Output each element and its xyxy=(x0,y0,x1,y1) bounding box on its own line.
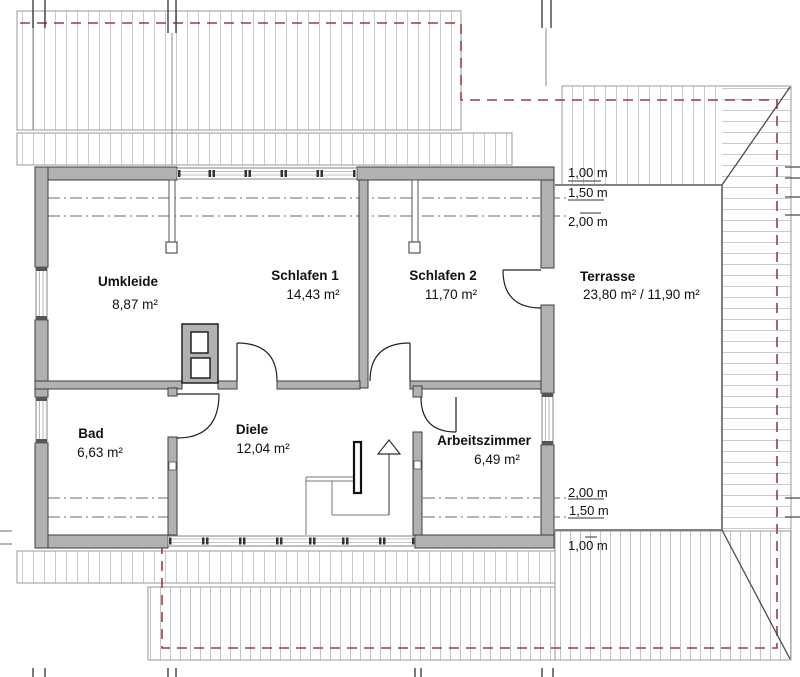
room-name: Bad xyxy=(78,426,104,441)
wall-top-right xyxy=(357,167,554,180)
room-name: Diele xyxy=(236,422,268,437)
room-label-bad: Bad xyxy=(78,426,104,441)
room-label-schlafen2: Schlafen 2 xyxy=(409,268,477,283)
wall-bottom-left xyxy=(35,535,168,548)
chimney xyxy=(182,324,218,383)
room-label-terrasse: Terrasse 23,80 m² / 11,90 m² xyxy=(580,268,700,304)
chimney-flue-1 xyxy=(191,332,208,353)
window-arbeitszimmer xyxy=(542,393,553,445)
door-bad xyxy=(177,394,219,438)
wall-right-lower xyxy=(541,445,554,548)
wall-schlafen-divider xyxy=(359,180,368,388)
room-label-diele: Diele xyxy=(236,422,268,437)
roof-hatch-bands xyxy=(17,11,791,660)
dim-top-1: 1,00 m xyxy=(568,165,608,180)
room-label-arbeitszimmer: Arbeitszimmer xyxy=(437,433,531,448)
window-band-bottom xyxy=(168,536,415,546)
wall-right-mid xyxy=(541,305,554,393)
post-umkleide xyxy=(169,180,175,242)
dim-bottom-3: 1,00 m xyxy=(568,538,608,553)
dim-bottom-1: 2,00 m xyxy=(568,485,608,500)
floor-plan-canvas: Umkleide 8,87 m² Schlafen 1 14,43 m² Sch… xyxy=(0,0,800,677)
room-area-schlafen2: 11,70 m² xyxy=(425,287,477,302)
dimension-lines xyxy=(568,181,604,537)
stair-up-arrow xyxy=(378,440,400,454)
wall-arbeitszimmer-divider xyxy=(413,432,422,535)
wall-insert-arbeitszimmer xyxy=(414,461,421,469)
door-arbeitszimmer xyxy=(421,397,456,432)
wall-top-left xyxy=(35,167,177,180)
dim-top-3: 2,00 m xyxy=(568,214,608,229)
room-area-arbeitszimmer: 6,49 m² xyxy=(474,452,520,467)
post-umkleide-base xyxy=(166,242,177,253)
room-name: Umkleide xyxy=(98,274,158,289)
room-area-diele: 12,04 m² xyxy=(236,441,289,456)
wall-arbeitszimmer-divider-stub xyxy=(413,386,422,397)
door-schlafen1 xyxy=(237,343,277,381)
wall-right-upper xyxy=(541,180,554,268)
room-area-umkleide: 8,87 m² xyxy=(112,297,158,312)
roof-band-top-main xyxy=(17,11,461,130)
wall-mid-horizontal-1 xyxy=(35,381,182,389)
roof-band-top-narrow xyxy=(17,133,512,165)
room-area: 12,04 m² xyxy=(236,441,289,456)
height-contour-lines xyxy=(0,198,566,544)
window-band-top xyxy=(177,168,357,179)
post-schlafen2-base xyxy=(409,242,420,253)
wall-mid-horizontal-3 xyxy=(277,381,360,389)
wall-bad-divider-stub xyxy=(168,388,177,396)
roof-band-bottom-main xyxy=(148,587,555,660)
floor-plan-drawing xyxy=(0,0,800,677)
staircase xyxy=(306,440,400,535)
post-schlafen2 xyxy=(412,180,418,242)
room-area: 8,87 m² xyxy=(112,297,158,312)
room-name: Terrasse xyxy=(580,268,700,286)
window-umkleide xyxy=(36,267,47,320)
room-area: 11,70 m² xyxy=(425,287,477,302)
wall-bad-divider xyxy=(168,437,177,535)
wall-mid-horizontal-4 xyxy=(410,381,541,389)
room-area: 6,63 m² xyxy=(77,445,123,460)
wall-left-upper xyxy=(35,167,48,267)
room-area: 23,80 m² / 11,90 m² xyxy=(580,286,700,304)
windows xyxy=(36,168,553,546)
room-label-schlafen1: Schlafen 1 xyxy=(271,268,339,283)
room-name: Arbeitszimmer xyxy=(437,433,531,448)
dim-bottom-2: 1,50 m xyxy=(569,503,609,518)
door-terrasse xyxy=(503,270,541,308)
roof-band-right-strip xyxy=(722,87,791,530)
room-area: 6,49 m² xyxy=(474,452,520,467)
walls xyxy=(35,167,554,548)
door-schlafen2 xyxy=(370,343,410,381)
stair-handrail xyxy=(354,442,361,493)
wall-mid-horizontal-2 xyxy=(218,381,237,389)
room-area: 14,43 m² xyxy=(286,287,339,302)
wall-insert-bad xyxy=(169,462,176,470)
room-area-schlafen1: 14,43 m² xyxy=(286,287,339,302)
room-name: Schlafen 1 xyxy=(271,268,339,283)
chimney-flue-2 xyxy=(191,358,210,378)
wall-bottom-right xyxy=(415,535,554,548)
wall-left-lower xyxy=(35,443,48,548)
roof-band-bottom-narrow xyxy=(17,551,555,583)
window-bad xyxy=(36,397,47,443)
room-name: Schlafen 2 xyxy=(409,268,477,283)
room-area-bad: 6,63 m² xyxy=(77,445,123,460)
dim-top-2: 1,50 m xyxy=(568,185,608,200)
room-label-umkleide: Umkleide xyxy=(98,274,158,289)
